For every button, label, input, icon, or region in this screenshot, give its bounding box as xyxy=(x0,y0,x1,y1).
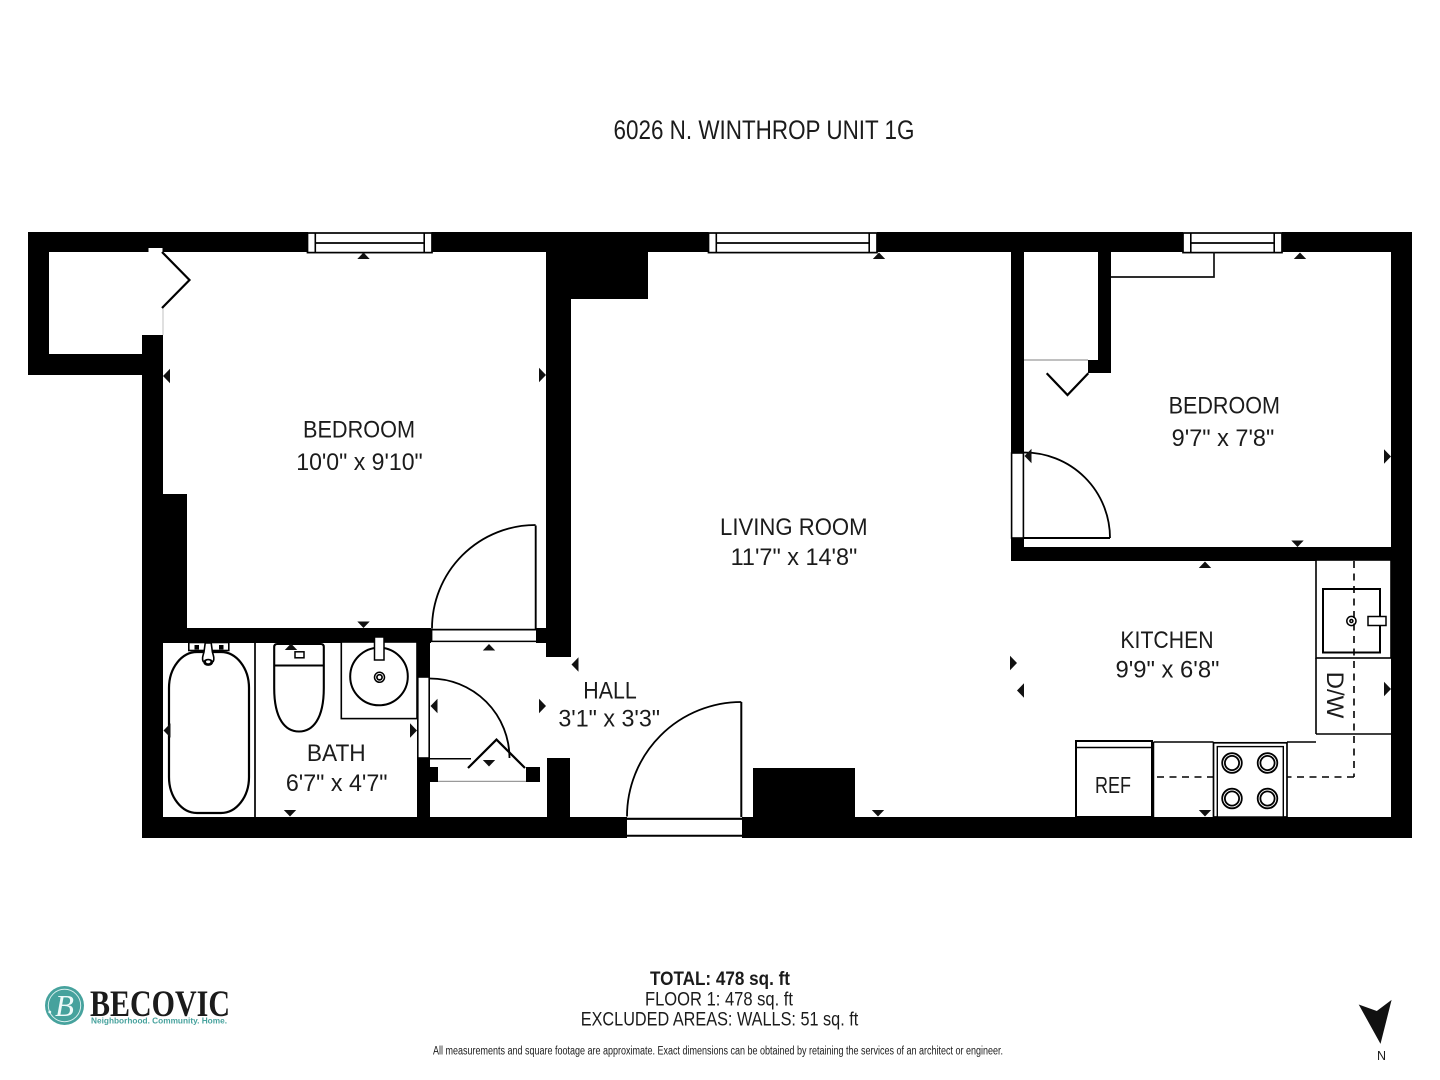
svg-text:3'1" x 3'3": 3'1" x 3'3" xyxy=(558,706,660,733)
svg-text:HALL: HALL xyxy=(583,677,636,704)
svg-text:EXCLUDED AREAS: WALLS: 51 sq.: EXCLUDED AREAS: WALLS: 51 sq. ft xyxy=(581,1009,859,1031)
svg-text:9'7" x 7'8": 9'7" x 7'8" xyxy=(1172,425,1275,452)
svg-text:11'7" x 14'8": 11'7" x 14'8" xyxy=(731,544,858,571)
svg-text:TOTAL: 478 sq. ft: TOTAL: 478 sq. ft xyxy=(650,968,790,990)
svg-text:All measurements and square fo: All measurements and square footage are … xyxy=(433,1046,1003,1058)
svg-text:B: B xyxy=(55,988,74,1023)
svg-text:N: N xyxy=(1377,1049,1386,1063)
svg-text:FLOOR 1: 478 sq. ft: FLOOR 1: 478 sq. ft xyxy=(645,989,793,1011)
svg-text:D/W: D/W xyxy=(1321,672,1348,719)
svg-text:10'0" x 9'10": 10'0" x 9'10" xyxy=(296,449,423,476)
svg-text:KITCHEN: KITCHEN xyxy=(1120,627,1213,654)
svg-text:BEDROOM: BEDROOM xyxy=(303,417,415,444)
svg-text:6'7" x 4'7": 6'7" x 4'7" xyxy=(286,770,388,797)
svg-text:LIVING ROOM: LIVING ROOM xyxy=(720,514,868,541)
svg-text:6026 N. WINTHROP UNIT 1G: 6026 N. WINTHROP UNIT 1G xyxy=(614,115,915,145)
svg-text:BATH: BATH xyxy=(307,740,366,767)
svg-text:REF: REF xyxy=(1095,772,1131,798)
svg-text:Neighborhood. Community. Home.: Neighborhood. Community. Home. xyxy=(91,1016,227,1026)
svg-text:9'9" x 6'8": 9'9" x 6'8" xyxy=(1116,657,1220,684)
svg-text:BEDROOM: BEDROOM xyxy=(1169,392,1280,419)
